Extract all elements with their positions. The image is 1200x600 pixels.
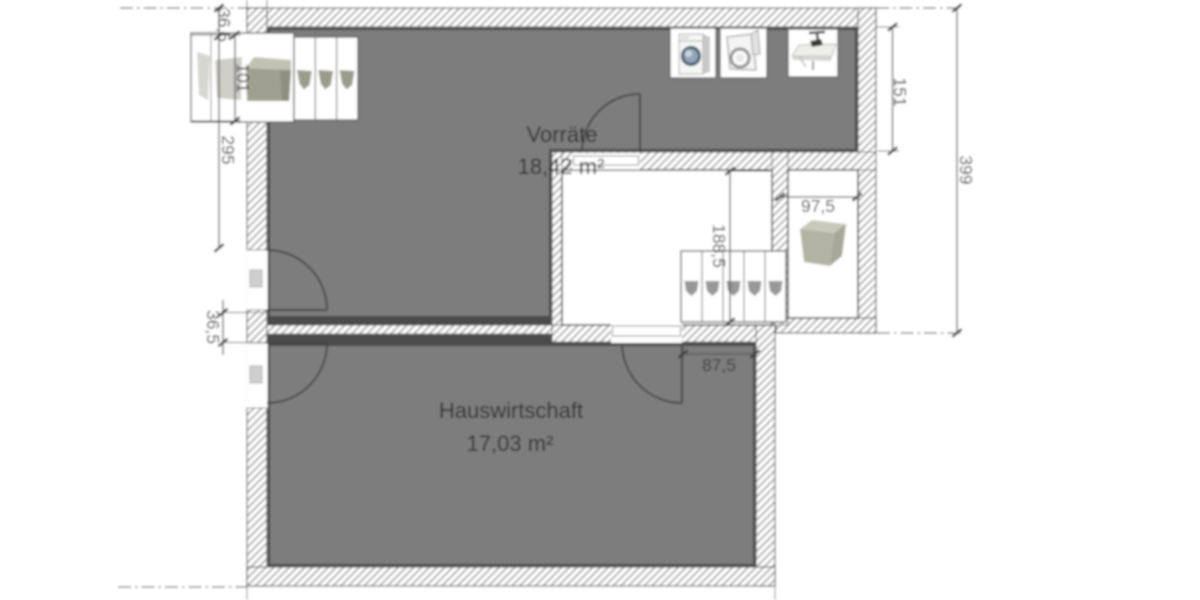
svg-text:Hauswirtschaft: Hauswirtschaft bbox=[439, 398, 583, 423]
svg-text:17,03 m²: 17,03 m² bbox=[467, 431, 554, 456]
svg-text:101: 101 bbox=[233, 63, 253, 92]
svg-text:87,5: 87,5 bbox=[702, 355, 736, 375]
svg-text:97,5: 97,5 bbox=[801, 196, 835, 216]
svg-text:188,5: 188,5 bbox=[709, 224, 729, 268]
svg-text:295: 295 bbox=[218, 135, 238, 164]
svg-text:151: 151 bbox=[890, 77, 910, 106]
svg-text:18,42 m²: 18,42 m² bbox=[518, 154, 605, 179]
svg-text:36,5: 36,5 bbox=[214, 8, 234, 42]
svg-text:399: 399 bbox=[956, 155, 976, 184]
svg-text:Vorräte: Vorräte bbox=[527, 122, 598, 147]
svg-text:36,5: 36,5 bbox=[203, 310, 223, 344]
